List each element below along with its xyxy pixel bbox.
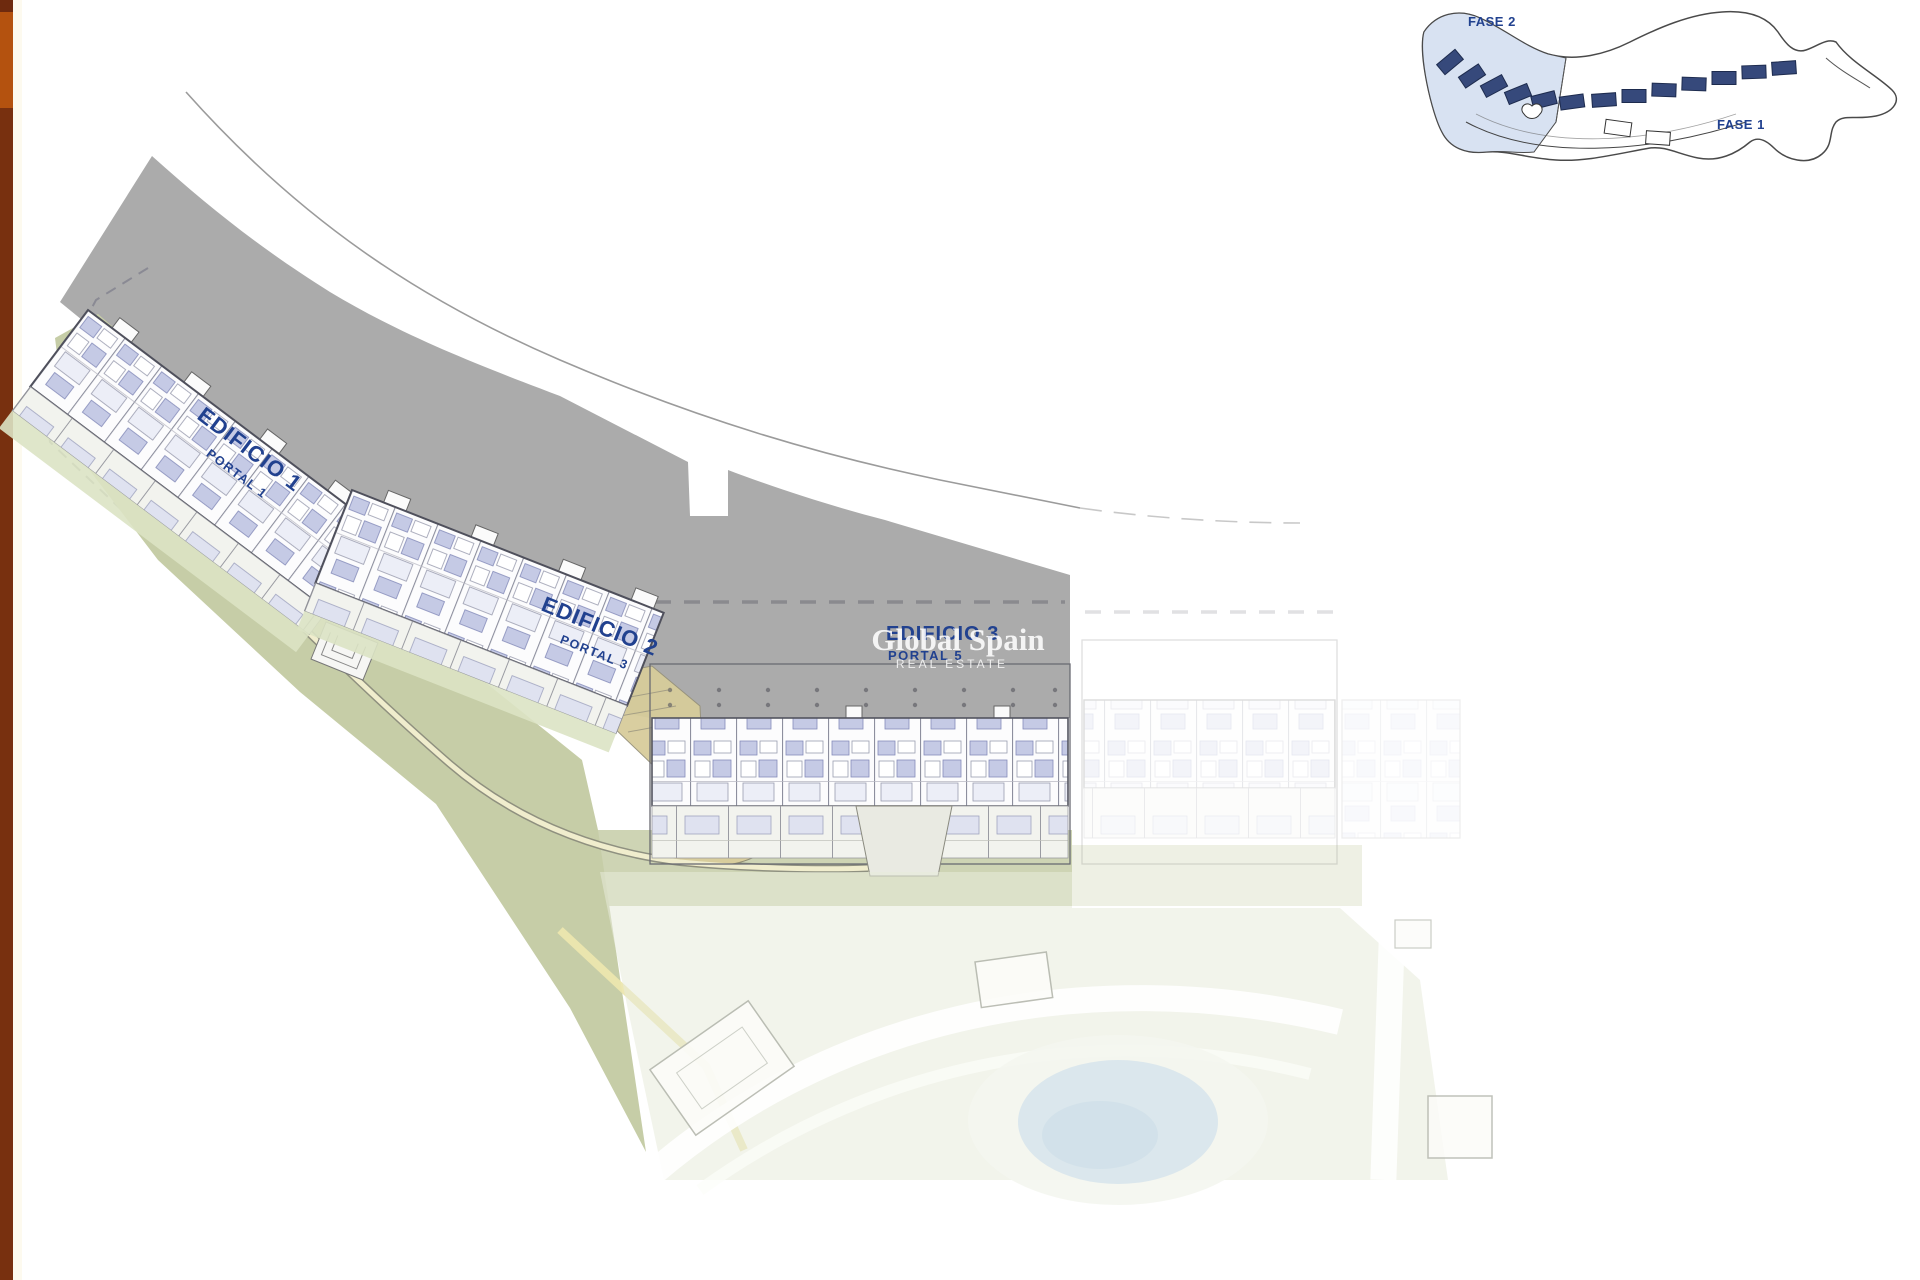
ghost-pavilion-b xyxy=(975,952,1053,1008)
ghost-landscape xyxy=(600,856,1492,1205)
ghost-pool-shade xyxy=(1042,1101,1158,1169)
site-plan-canvas: EDIFICIO 1 PORTAL 1 EDIFICIO 2 PORTAL 3 … xyxy=(0,0,1920,1280)
ghost-phase1-building xyxy=(1082,612,1337,864)
watermark-subtitle: REAL ESTATE xyxy=(896,657,1008,671)
inset-phase2-label: FASE 2 xyxy=(1468,14,1516,29)
ghost-pavilion-d xyxy=(1395,920,1431,948)
road-edge-curve-faded xyxy=(1080,508,1300,523)
b3-pool-stair xyxy=(856,806,952,876)
watermark-title: Global Spain xyxy=(871,622,1044,657)
building-3-slab xyxy=(652,718,1068,806)
ghost-pavilion-c xyxy=(1428,1096,1492,1158)
inset-phase1-label: FASE 1 xyxy=(1717,117,1765,132)
main-site-plan: EDIFICIO 1 PORTAL 1 EDIFICIO 2 PORTAL 3 … xyxy=(0,92,1492,1205)
b3-core-stub-left xyxy=(846,706,862,718)
landscape-strip-b3-faded xyxy=(1072,845,1362,906)
phase-overview-inset: FASE 2 FASE 1 xyxy=(1423,12,1897,161)
ghost-phase1-building-far xyxy=(1342,700,1460,838)
b3-core-stub-right xyxy=(994,706,1010,718)
